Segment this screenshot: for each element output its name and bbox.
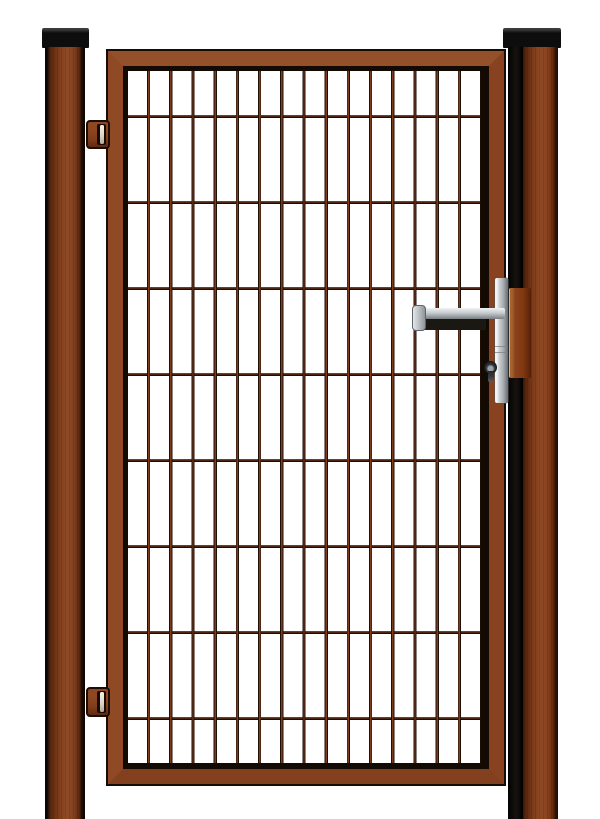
hinge-top-pin	[100, 125, 104, 144]
hinge-bottom	[86, 687, 110, 717]
escutcheon-seam	[495, 346, 508, 353]
gate-frame	[106, 49, 506, 786]
strike-plate	[509, 288, 531, 378]
wire-mesh-panel	[128, 71, 481, 763]
left-post	[45, 47, 85, 819]
mesh-vertical-bars	[147, 71, 482, 763]
right-post-shadow	[508, 47, 523, 819]
keyhole-stem	[488, 371, 494, 382]
right-post	[523, 47, 558, 819]
right-post-cap	[503, 28, 561, 48]
hinge-bottom-pin	[100, 692, 104, 712]
handle-lever-tip	[412, 305, 426, 331]
left-post-cap	[42, 28, 89, 48]
lock-escutcheon-plate	[495, 278, 508, 403]
hinge-top	[86, 120, 110, 149]
gate-product-photo	[0, 0, 600, 819]
handle-lever	[417, 308, 505, 319]
